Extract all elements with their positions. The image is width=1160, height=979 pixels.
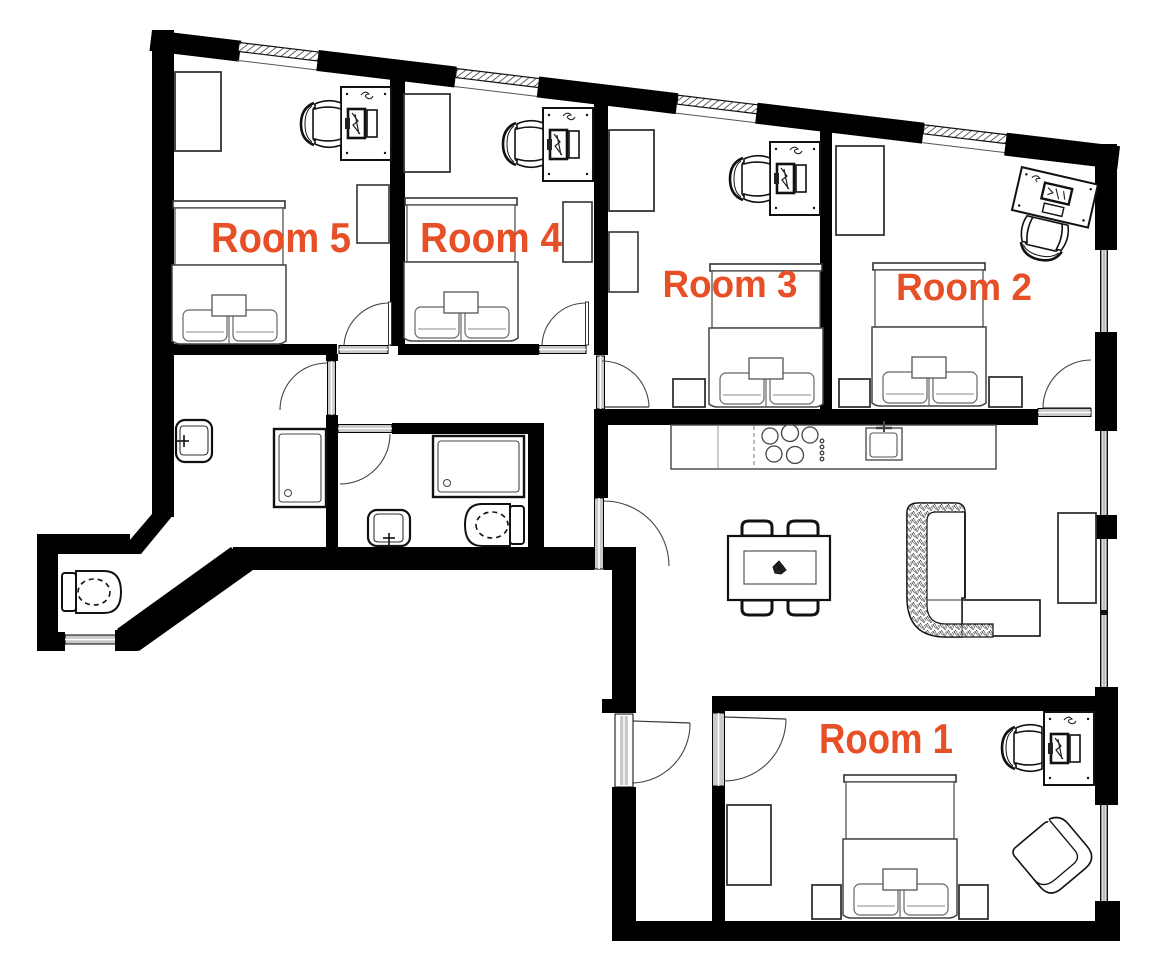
svg-text:Room 5: Room 5: [211, 214, 351, 261]
svg-text:Room 4: Room 4: [420, 214, 563, 261]
svg-text:Room 1: Room 1: [819, 715, 953, 762]
svg-text:Room 2: Room 2: [896, 267, 1032, 309]
svg-text:Room 3: Room 3: [663, 264, 798, 306]
